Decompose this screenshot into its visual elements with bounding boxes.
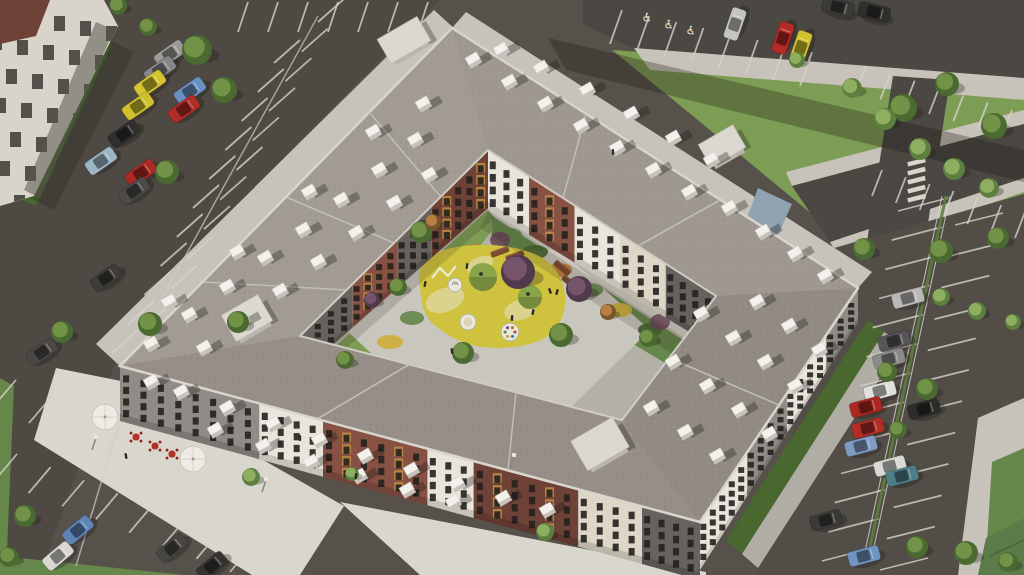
- window: [807, 372, 813, 377]
- lamp-head: [264, 477, 268, 481]
- window: [399, 252, 405, 258]
- tree-highlight: [365, 293, 376, 304]
- window: [562, 219, 568, 226]
- window: [503, 183, 509, 191]
- window: [807, 364, 813, 369]
- tree-highlight: [411, 222, 426, 237]
- window: [529, 509, 535, 516]
- tree-highlight: [890, 422, 903, 435]
- window: [787, 402, 793, 407]
- window: [6, 69, 17, 84]
- tree-highlight: [0, 548, 14, 562]
- window: [387, 253, 393, 259]
- window: [777, 409, 783, 414]
- lamp-head: [512, 453, 516, 457]
- window: [592, 250, 598, 257]
- window: [17, 40, 28, 55]
- window: [328, 311, 334, 316]
- tree-highlight: [346, 468, 356, 478]
- window: [361, 439, 367, 446]
- window: [343, 447, 349, 454]
- table: [152, 443, 159, 450]
- window: [396, 473, 402, 480]
- window: [328, 329, 334, 334]
- window: [54, 16, 65, 31]
- window: [653, 276, 659, 283]
- window: [529, 497, 535, 504]
- window: [193, 417, 199, 424]
- chair: [140, 432, 143, 435]
- window: [562, 207, 568, 214]
- umbrella-pole: [192, 458, 195, 461]
- window: [680, 304, 686, 311]
- tree-highlight: [999, 553, 1013, 567]
- chair: [149, 441, 152, 444]
- window: [123, 387, 129, 394]
- tree-highlight: [640, 330, 653, 343]
- window: [445, 486, 451, 493]
- window: [354, 286, 360, 292]
- chair: [140, 440, 143, 443]
- tree-highlight: [601, 305, 612, 316]
- chair: [159, 449, 162, 452]
- window: [69, 50, 80, 65]
- window: [629, 512, 635, 519]
- chair: [176, 449, 179, 452]
- umbrella-pole: [104, 416, 107, 419]
- window: [848, 303, 854, 307]
- window: [365, 285, 371, 291]
- window: [623, 246, 629, 253]
- window: [262, 413, 268, 420]
- window: [158, 396, 164, 403]
- tree-highlight: [550, 324, 567, 341]
- window: [577, 217, 583, 224]
- window: [787, 394, 793, 399]
- lamp-head: [94, 435, 98, 439]
- table: [169, 451, 176, 458]
- aerial-3d-render: ♿♿♿: [0, 0, 1024, 575]
- window: [399, 242, 405, 248]
- window: [430, 458, 436, 465]
- window: [376, 264, 382, 270]
- window: [80, 21, 91, 36]
- window: [490, 161, 496, 169]
- window: [546, 490, 552, 497]
- window: [758, 456, 764, 462]
- window: [758, 438, 764, 444]
- window: [531, 212, 537, 220]
- tree-highlight: [930, 240, 947, 257]
- window: [738, 486, 744, 492]
- window: [503, 195, 509, 203]
- cafe-umbrella: [180, 446, 206, 472]
- window: [577, 229, 583, 236]
- window: [478, 165, 484, 172]
- window: [673, 524, 679, 532]
- window: [354, 295, 360, 301]
- tree-highlight: [426, 215, 437, 226]
- window: [710, 510, 716, 516]
- window: [629, 524, 635, 531]
- window: [478, 177, 484, 184]
- window: [278, 429, 284, 436]
- window: [376, 274, 382, 280]
- window: [315, 332, 321, 337]
- window: [158, 408, 164, 415]
- window: [613, 507, 619, 514]
- window: [175, 413, 181, 420]
- window: [597, 515, 603, 522]
- window: [365, 275, 371, 281]
- window: [729, 481, 735, 487]
- tree-highlight: [228, 312, 243, 327]
- window: [688, 540, 694, 548]
- window: [245, 408, 251, 415]
- tree-highlight: [156, 161, 173, 178]
- window: [455, 210, 461, 217]
- tree-highlight: [337, 352, 350, 365]
- window: [700, 534, 706, 540]
- chair: [130, 440, 133, 443]
- tree-highlight: [875, 109, 890, 124]
- window: [581, 523, 587, 530]
- window: [310, 426, 316, 433]
- window: [848, 318, 854, 322]
- window: [692, 301, 698, 308]
- window: [623, 269, 629, 276]
- window: [478, 189, 484, 196]
- tree-highlight: [790, 53, 801, 64]
- disc-center: [464, 318, 473, 327]
- window: [466, 188, 472, 195]
- window: [245, 432, 251, 439]
- window: [193, 394, 199, 401]
- tree-highlight: [503, 257, 527, 281]
- window: [673, 548, 679, 556]
- window: [410, 242, 416, 249]
- window: [710, 519, 716, 525]
- color-dot: [513, 330, 516, 333]
- window: [466, 176, 472, 183]
- window: [444, 210, 450, 217]
- window: [512, 480, 518, 487]
- window: [396, 461, 402, 468]
- window: [32, 74, 43, 89]
- window: [387, 263, 393, 269]
- window: [653, 265, 659, 272]
- tree-highlight: [15, 506, 30, 521]
- window: [738, 467, 744, 473]
- pedestrian: [299, 435, 302, 441]
- window: [838, 334, 844, 339]
- chair: [130, 432, 133, 435]
- window: [343, 458, 349, 465]
- window: [827, 334, 833, 339]
- window: [719, 505, 725, 511]
- window: [341, 316, 347, 322]
- window: [748, 453, 754, 459]
- tree-highlight: [988, 228, 1003, 243]
- tree-highlight: [243, 469, 256, 482]
- window: [838, 319, 844, 324]
- window: [503, 170, 509, 178]
- chair: [149, 449, 152, 452]
- window: [531, 188, 537, 196]
- play-equipment: [526, 292, 530, 296]
- chair: [166, 457, 169, 460]
- tree-highlight: [980, 179, 994, 193]
- tree-highlight: [854, 239, 869, 254]
- window: [564, 494, 570, 501]
- window: [517, 191, 523, 199]
- tree-highlight: [213, 78, 231, 96]
- window: [517, 204, 523, 212]
- window: [607, 248, 613, 255]
- window: [644, 528, 650, 536]
- window: [667, 285, 673, 292]
- window: [700, 544, 706, 550]
- window: [688, 528, 694, 536]
- window: [445, 462, 451, 469]
- flower-bed: [400, 311, 424, 325]
- pedestrian: [355, 473, 358, 479]
- window: [328, 320, 334, 325]
- tree-highlight: [568, 277, 586, 295]
- window: [680, 282, 686, 289]
- pedestrian: [612, 149, 615, 155]
- tree-highlight: [955, 542, 972, 559]
- window: [838, 326, 844, 331]
- window: [848, 310, 854, 314]
- window: [607, 260, 613, 267]
- tree-highlight: [843, 79, 857, 93]
- window: [797, 395, 803, 400]
- color-dot: [506, 326, 509, 329]
- window: [547, 198, 553, 206]
- window: [413, 454, 419, 461]
- window: [140, 392, 146, 399]
- window: [193, 406, 199, 413]
- window: [638, 278, 644, 285]
- window: [644, 516, 650, 524]
- window: [659, 532, 665, 540]
- window: [787, 411, 793, 416]
- window: [21, 103, 32, 118]
- window: [490, 187, 496, 195]
- window: [354, 305, 360, 311]
- table: [133, 434, 140, 441]
- tree-highlight: [907, 537, 922, 552]
- tree-highlight: [1006, 315, 1017, 326]
- window: [659, 520, 665, 528]
- window: [245, 420, 251, 427]
- window: [592, 238, 598, 245]
- window: [758, 447, 764, 453]
- tree-highlight: [184, 37, 205, 58]
- window: [430, 482, 436, 489]
- window: [494, 475, 500, 482]
- window: [413, 477, 419, 484]
- spiral-play-disc: [448, 278, 462, 292]
- window: [748, 462, 754, 468]
- window: [461, 466, 467, 473]
- window: [692, 290, 698, 297]
- window: [688, 552, 694, 560]
- window: [445, 474, 451, 481]
- window: [667, 297, 673, 304]
- window: [607, 236, 613, 243]
- window: [341, 298, 347, 304]
- tree-highlight: [52, 322, 67, 337]
- window: [10, 132, 21, 147]
- window: [210, 410, 216, 417]
- window: [0, 161, 10, 176]
- window: [0, 98, 6, 113]
- window: [667, 274, 673, 281]
- window: [477, 495, 483, 502]
- window: [477, 471, 483, 478]
- tree-highlight: [983, 114, 1001, 132]
- window: [562, 231, 568, 238]
- window: [477, 483, 483, 490]
- window: [581, 511, 587, 518]
- tree-highlight: [933, 289, 946, 302]
- window: [175, 401, 181, 408]
- window: [597, 503, 603, 510]
- window: [638, 255, 644, 262]
- window: [680, 293, 686, 300]
- window: [547, 222, 553, 230]
- window: [729, 500, 735, 506]
- window: [638, 267, 644, 274]
- window: [673, 536, 679, 544]
- window: [529, 485, 535, 492]
- window: [294, 445, 300, 452]
- window: [719, 515, 725, 521]
- cafe-umbrella: [92, 404, 118, 430]
- tree-highlight: [140, 19, 153, 32]
- window: [738, 476, 744, 482]
- window: [140, 403, 146, 410]
- window: [777, 417, 783, 422]
- window: [466, 200, 472, 207]
- chair: [159, 441, 162, 444]
- window: [123, 375, 129, 382]
- window: [343, 435, 349, 442]
- window: [341, 307, 347, 313]
- tree-highlight: [537, 524, 550, 537]
- window: [430, 470, 436, 477]
- window: [376, 284, 382, 290]
- window: [719, 495, 725, 501]
- tree-highlight: [453, 343, 468, 358]
- play-equipment: [479, 272, 483, 276]
- window: [43, 45, 54, 60]
- window: [659, 544, 665, 552]
- tree-highlight: [944, 159, 959, 174]
- window: [613, 532, 619, 539]
- window: [399, 263, 405, 269]
- tree-highlight: [891, 95, 911, 115]
- window: [512, 504, 518, 511]
- window: [517, 179, 523, 187]
- color-dot: [503, 330, 506, 333]
- window: [581, 499, 587, 506]
- window: [592, 226, 598, 233]
- window: [653, 288, 659, 295]
- window: [387, 273, 393, 279]
- window: [294, 421, 300, 428]
- window: [210, 399, 216, 406]
- window: [564, 518, 570, 525]
- window: [531, 200, 537, 208]
- flower-bed: [377, 335, 403, 349]
- aerial-view-canvas: ♿♿♿: [0, 0, 1024, 575]
- window: [410, 252, 416, 259]
- tree-highlight: [917, 379, 932, 394]
- window: [490, 174, 496, 182]
- window: [644, 540, 650, 548]
- tree-highlight: [910, 139, 925, 154]
- window: [613, 519, 619, 526]
- window: [315, 324, 321, 329]
- window: [700, 524, 706, 530]
- tree-highlight: [878, 363, 892, 377]
- window: [123, 398, 129, 405]
- window: [710, 529, 716, 535]
- tree-highlight: [936, 73, 953, 90]
- window: [444, 198, 450, 205]
- window: [455, 187, 461, 194]
- chair: [176, 457, 179, 460]
- tree-highlight: [390, 279, 403, 292]
- window: [378, 468, 384, 475]
- window: [547, 210, 553, 218]
- color-dot: [506, 335, 509, 338]
- window: [227, 415, 233, 422]
- window: [396, 449, 402, 456]
- window: [577, 241, 583, 248]
- window: [748, 471, 754, 477]
- window: [623, 257, 629, 264]
- tree-highlight: [969, 303, 982, 316]
- window: [455, 199, 461, 206]
- color-dot: [511, 326, 514, 329]
- tree-highlight: [139, 313, 156, 330]
- window: [629, 536, 635, 543]
- window: [597, 527, 603, 534]
- window: [817, 365, 823, 370]
- window: [729, 491, 735, 497]
- color-dot: [511, 335, 514, 338]
- chair: [166, 449, 169, 452]
